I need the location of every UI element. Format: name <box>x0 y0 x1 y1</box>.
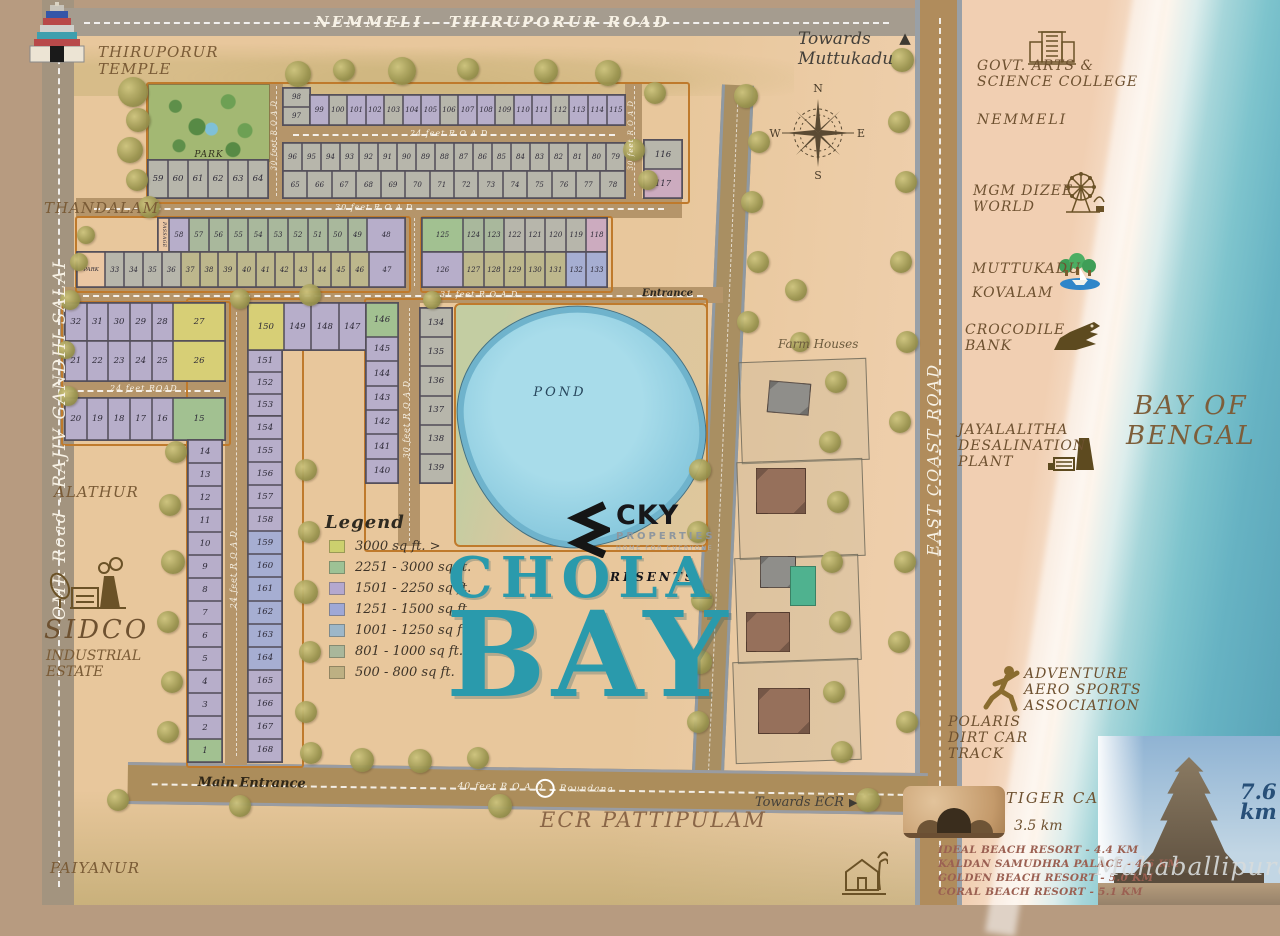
plot-136: 136 <box>420 366 452 395</box>
plot-103: 103 <box>384 95 403 125</box>
tree-icon <box>467 747 489 769</box>
muttukadu-kovalam-label: MUTTUKADU KOVALAM <box>972 258 1081 306</box>
compass-rose-icon: N S W E <box>768 80 868 180</box>
plot-82: 82 <box>549 143 568 171</box>
tree-icon <box>737 311 759 333</box>
plot-76: 76 <box>552 171 576 198</box>
plot-38: 38 <box>200 252 219 287</box>
plot-93: 93 <box>340 143 359 171</box>
farm-pool <box>790 566 816 606</box>
plot-69: 69 <box>381 171 405 198</box>
tree-icon <box>70 253 88 271</box>
plot-154: 154 <box>248 416 282 439</box>
plot-59: 59 <box>148 160 168 198</box>
plot-57: 57 <box>189 218 209 252</box>
plot-53: 53 <box>268 218 288 252</box>
tree-icon <box>77 226 95 244</box>
tree-icon <box>408 749 432 773</box>
plot-43: 43 <box>294 252 313 287</box>
tree-icon <box>350 748 374 772</box>
row-65-78: 6566676869707172737475767778 <box>283 171 625 198</box>
plot-160: 160 <box>248 554 282 577</box>
plot-73: 73 <box>478 171 502 198</box>
plot-99: 99 <box>310 95 329 125</box>
plot-46: 46 <box>350 252 369 287</box>
plot-127: 127 <box>463 252 484 287</box>
plot-95: 95 <box>302 143 321 171</box>
plot-4: 4 <box>188 670 222 693</box>
tree-icon <box>896 331 918 353</box>
plot-74: 74 <box>503 171 527 198</box>
roundana-label: Roundana <box>560 784 614 795</box>
plot-13: 13 <box>188 463 222 486</box>
plot-56: 56 <box>209 218 229 252</box>
plot-29: 29 <box>130 303 152 341</box>
plot-142: 142 <box>366 410 398 434</box>
plot-107: 107 <box>458 95 477 125</box>
plot-86: 86 <box>473 143 492 171</box>
plot-35: 35 <box>143 252 162 287</box>
tree-icon <box>285 61 311 87</box>
plot-121: 121 <box>525 218 546 252</box>
plot-109: 109 <box>495 95 514 125</box>
tree-icon <box>856 788 880 812</box>
plot-135: 135 <box>420 337 452 366</box>
tree-icon <box>333 59 355 81</box>
tree-icon <box>488 794 512 818</box>
nemmeli-road-label: NEMMELI - THIRUPORUR ROAD <box>315 13 615 31</box>
plot-6: 6 <box>188 624 222 647</box>
farm-houses-label: Farm Houses <box>778 338 858 352</box>
col-146-140: 146145144143142141140 <box>366 303 398 483</box>
tree-icon <box>734 84 758 108</box>
tree-icon <box>888 111 910 133</box>
plot-47: 47 <box>369 252 405 287</box>
tree-icon <box>300 742 322 764</box>
plot-3: 3 <box>188 693 222 716</box>
plot-42: 42 <box>275 252 294 287</box>
plot-157: 157 <box>248 485 282 508</box>
plot-96: 96 <box>283 143 302 171</box>
plot-139: 139 <box>420 454 452 483</box>
plot-88: 88 <box>435 143 454 171</box>
row-99-115: 9910010110210310410510610710810911011111… <box>310 95 625 125</box>
tree-icon <box>748 131 770 153</box>
plot-115: 115 <box>607 95 626 125</box>
plot-22: 22 <box>87 341 109 381</box>
compass-w: W <box>769 127 781 140</box>
plot-165: 165 <box>248 670 282 693</box>
road-31-label: 31 feet R O A D <box>440 290 518 299</box>
plot-17: 17 <box>130 398 152 440</box>
row-21-26: 212223242526 <box>65 341 225 381</box>
plot-63: 63 <box>228 160 248 198</box>
plot-31: 31 <box>87 303 109 341</box>
tree-icon <box>890 251 912 273</box>
cave-arch <box>937 808 971 834</box>
plot-64: 64 <box>248 160 268 198</box>
plot-137: 137 <box>420 396 452 425</box>
plot-158: 158 <box>248 508 282 531</box>
row-126-133: 126127128129130131132133 <box>422 252 607 287</box>
govt-college-label: GOVT. ARTS & SCIENCE COLLEGE <box>977 58 1138 90</box>
plot-15: 15 <box>173 398 225 440</box>
plot-54: 54 <box>248 218 268 252</box>
towards-ecr: Towards ECR ▶ <box>755 796 857 811</box>
tree-icon <box>895 171 917 193</box>
tree-icon <box>829 611 851 633</box>
col-14-1: 1413121110987654321 <box>188 440 222 762</box>
tree-icon <box>299 284 321 306</box>
plot-126: 126 <box>422 252 463 287</box>
plot-161: 161 <box>248 577 282 600</box>
legend-swatch <box>329 540 345 553</box>
desalination-plant-label: JAYALALITHA DESALINATION PLANT <box>958 422 1086 470</box>
tree-icon <box>299 641 321 663</box>
park-area: PARK <box>148 84 270 162</box>
plot-166: 166 <box>248 693 282 716</box>
plot-81: 81 <box>568 143 587 171</box>
towards-muttukadu: Towards Muttukadu ▲ <box>798 30 911 69</box>
plot-168: 168 <box>248 739 282 762</box>
plot-129: 129 <box>504 252 525 287</box>
cave-base <box>903 833 1005 838</box>
tree-icon <box>457 58 479 80</box>
plot-133: 133 <box>586 252 607 287</box>
tree-icon <box>823 681 845 703</box>
plot-24: 24 <box>130 341 152 381</box>
plot-80: 80 <box>587 143 606 171</box>
runner-icon <box>982 664 1022 712</box>
plot-128: 128 <box>484 252 505 287</box>
tree-icon <box>165 441 187 463</box>
plot-141: 141 <box>366 434 398 458</box>
plot-156: 156 <box>248 462 282 485</box>
tiger-caves-distance: 3.5 km <box>1014 818 1062 834</box>
tree-icon <box>831 741 853 763</box>
row-96-79: 969594939291908988878685848382818079 <box>283 143 625 171</box>
tree-icon <box>295 701 317 723</box>
entrance-label: Entrance <box>642 288 693 300</box>
tree-icon <box>107 789 129 811</box>
plot-49: 49 <box>348 218 368 252</box>
plot-143: 143 <box>366 386 398 410</box>
farm-house <box>756 468 806 514</box>
plot-26: 26 <box>173 341 225 381</box>
row-98-97: 9897 <box>283 88 310 125</box>
plot-89: 89 <box>416 143 435 171</box>
tree-icon <box>747 251 769 273</box>
legend-swatch <box>329 603 345 616</box>
row-58-48: PASSAGE5857565554535251504948 <box>158 218 405 252</box>
plot-119: 119 <box>566 218 587 252</box>
road-30a-label: 30 feet R O A D <box>335 203 413 212</box>
bay-of-bengal-label: BAY OF BENGAL <box>1126 392 1256 452</box>
tree-icon <box>821 551 843 573</box>
tree-icon <box>534 59 558 83</box>
plot-14: 14 <box>188 440 222 463</box>
plot-67: 67 <box>332 171 356 198</box>
plot-77: 77 <box>576 171 600 198</box>
plot-125: 125 <box>422 218 463 252</box>
plot-100: 100 <box>329 95 348 125</box>
plot-8: 8 <box>188 578 222 601</box>
tree-icon <box>117 137 143 163</box>
plot-48: 48 <box>367 218 405 252</box>
plot-102: 102 <box>366 95 385 125</box>
plot-163: 163 <box>248 624 282 647</box>
resort-item: CORAL BEACH RESORT - 5.1 KM <box>938 885 1180 899</box>
tree-icon <box>118 77 148 107</box>
plot-114: 114 <box>588 95 607 125</box>
compass-e: E <box>857 127 865 140</box>
farm-house <box>746 612 790 652</box>
tree-icon <box>126 108 150 132</box>
plot-101: 101 <box>347 95 366 125</box>
row-20-15: 201918171615 <box>65 398 225 440</box>
plot-60: 60 <box>168 160 188 198</box>
plot-87: 87 <box>454 143 473 171</box>
plot-155: 155 <box>248 439 282 462</box>
plot-150: 150 <box>248 303 284 350</box>
plot-146: 146 <box>366 303 398 337</box>
plot-25: 25 <box>152 341 174 381</box>
crocodile-bank-label: CROCODILE BANK <box>965 322 1065 354</box>
tree-icon <box>819 431 841 453</box>
plot-92: 92 <box>359 143 378 171</box>
plot-44: 44 <box>313 252 332 287</box>
plot-51: 51 <box>308 218 328 252</box>
plot-132: 132 <box>566 252 587 287</box>
plot-104: 104 <box>403 95 422 125</box>
plot-111: 111 <box>532 95 551 125</box>
plot-138: 138 <box>420 425 452 454</box>
plot-40: 40 <box>237 252 256 287</box>
plot-68: 68 <box>356 171 380 198</box>
compass-s: S <box>814 169 822 180</box>
tree-icon <box>644 82 666 104</box>
forty-feet-road-label: 40 feet R O A D <box>458 782 544 793</box>
legend-swatch <box>329 561 345 574</box>
cky-sub: PROPERTIES <box>616 531 716 542</box>
tree-icon <box>157 721 179 743</box>
plot-134: 134 <box>420 308 452 337</box>
plot-50: 50 <box>328 218 348 252</box>
plot-18: 18 <box>108 398 130 440</box>
plot-70: 70 <box>405 171 429 198</box>
plot-151: 151 <box>248 350 282 372</box>
towards-muttukadu-label: Towards Muttukadu <box>798 30 893 69</box>
plot-159: 159 <box>248 531 282 554</box>
tree-icon <box>689 459 711 481</box>
plot-45: 45 <box>331 252 350 287</box>
plot-140: 140 <box>366 459 398 483</box>
tree-icon <box>161 671 183 693</box>
row-125-118: 125124123122121120119118 <box>422 218 607 252</box>
legend-label: 500 - 800 sq ft. <box>355 665 455 680</box>
up-triangle-icon: ▲ <box>899 30 911 69</box>
plot-58: 58 <box>169 218 189 252</box>
tree-icon <box>388 57 416 85</box>
plot-16: 16 <box>152 398 174 440</box>
compass-n: N <box>813 82 823 95</box>
plot-148: 148 <box>311 303 338 350</box>
road-v1-label: 30 feet R O A D <box>270 100 278 170</box>
plot-84: 84 <box>511 143 530 171</box>
tree-icon <box>827 491 849 513</box>
plot-147: 147 <box>339 303 366 350</box>
road-24a-label: 24 feet R O A D <box>410 129 488 138</box>
tree-icon <box>888 631 910 653</box>
plot-83: 83 <box>530 143 549 171</box>
tree-icon <box>825 371 847 393</box>
ecr-pattipulam-label: ECR PATTIPULAM <box>540 808 767 832</box>
plot-33: 33 <box>105 252 124 287</box>
row-32-27: 323130292827 <box>65 303 225 341</box>
plot-2: 2 <box>188 716 222 739</box>
plot-39: 39 <box>218 252 237 287</box>
plot-145: 145 <box>366 337 398 361</box>
plot-34: 34 <box>124 252 143 287</box>
plot-112: 112 <box>551 95 570 125</box>
tree-icon <box>298 521 320 543</box>
tree-icon <box>294 580 318 604</box>
mahabalipuram-distance: 7.6 km <box>1240 782 1277 822</box>
tree-icon <box>230 289 250 309</box>
plot-123: 123 <box>484 218 505 252</box>
legend-label: 3000 sq ft. > <box>355 539 441 554</box>
road-24b-label: 24 feet ROAD <box>110 384 178 393</box>
tree-icon <box>889 411 911 433</box>
farm-house <box>767 380 812 416</box>
col-154-168: 1541551561571581591601611621631641651661… <box>248 416 282 762</box>
nemmeli-label: NEMMELI <box>977 112 1067 128</box>
tree-icon <box>785 279 807 301</box>
plot-162: 162 <box>248 601 282 624</box>
plot-66: 66 <box>307 171 331 198</box>
right-triangle-icon: ▶ <box>849 797 857 810</box>
plot-27: 27 <box>173 303 225 341</box>
plot-108: 108 <box>477 95 496 125</box>
tree-icon <box>741 191 763 213</box>
plot-97: 97 <box>283 107 310 126</box>
plot-78: 78 <box>600 171 624 198</box>
legend-title: Legend <box>325 512 471 533</box>
plot-153: 153 <box>248 394 282 416</box>
legend-swatch <box>329 645 345 658</box>
sidco-factory-icon <box>46 556 130 614</box>
tiger-caves-photo <box>903 786 1005 838</box>
road-v2-label: 30 feet R O A D <box>627 100 635 170</box>
plot-10: 10 <box>188 532 222 555</box>
plot-152: 152 <box>248 372 282 394</box>
plot-79: 79 <box>606 143 625 171</box>
thiruporur-temple-label: THIRUPORUR TEMPLE <box>98 44 219 79</box>
plot-1: 1 <box>188 739 222 762</box>
mahabalipuram-label: Mahaballipuram <box>1095 852 1280 881</box>
plot-52: 52 <box>288 218 308 252</box>
row-150-147: 150149148147 <box>248 303 366 350</box>
plot-110: 110 <box>514 95 533 125</box>
plot-36: 36 <box>162 252 181 287</box>
farm-house <box>758 688 810 734</box>
row-33-47: PARK333435363738394041424344454647 <box>77 252 405 287</box>
pond-label: POND <box>505 386 615 401</box>
tree-icon <box>159 494 181 516</box>
plot-130: 130 <box>525 252 546 287</box>
plot-75: 75 <box>527 171 551 198</box>
mgm-dizee-world-label: MGM DIZEE WORLD <box>973 183 1073 215</box>
industrial-estate-label: INDUSTRIAL ESTATE <box>46 648 141 680</box>
plot-9: 9 <box>188 555 222 578</box>
alathur-label: ALATHUR <box>54 484 139 501</box>
plot-144: 144 <box>366 361 398 385</box>
plot-55: 55 <box>228 218 248 252</box>
col-134-139: 134135136137138139 <box>420 308 452 483</box>
plot-7: 7 <box>188 601 222 624</box>
plot-37: 37 <box>181 252 200 287</box>
plot-72: 72 <box>454 171 478 198</box>
plot-122: 122 <box>504 218 525 252</box>
plot-149: 149 <box>284 303 311 350</box>
plot-19: 19 <box>87 398 109 440</box>
legend-swatch <box>329 582 345 595</box>
plot-167: 167 <box>248 716 282 739</box>
tree-icon <box>161 550 185 574</box>
towards-ecr-label: Towards ECR <box>755 796 844 811</box>
passage-cell: PASSAGE <box>158 218 169 252</box>
thiruporur-temple-icon <box>24 2 90 64</box>
tree-icon <box>229 795 251 817</box>
thandalam-label: THANDALAM <box>44 200 159 217</box>
sidco-label: SIDCO <box>44 616 149 646</box>
plot-106: 106 <box>440 95 459 125</box>
plot-85: 85 <box>492 143 511 171</box>
plot-116: 116 <box>644 140 682 169</box>
plot-105: 105 <box>421 95 440 125</box>
internal-road-31 <box>63 287 723 303</box>
tree-icon <box>638 170 658 190</box>
tree-icon <box>423 291 441 309</box>
plot-30: 30 <box>108 303 130 341</box>
tree-icon <box>126 169 148 191</box>
cky-name: CKY <box>616 500 716 531</box>
park-label: PARK <box>149 150 269 160</box>
tree-icon <box>896 711 918 733</box>
plot-118: 118 <box>586 218 607 252</box>
chola-bay-layout-map: { "colors":{"gray":"#b7b6ab","lav":"#b7a… <box>0 0 1280 905</box>
tree-icon <box>295 459 317 481</box>
plot-120: 120 <box>545 218 566 252</box>
plot-71: 71 <box>430 171 454 198</box>
plot-131: 131 <box>545 252 566 287</box>
plot-90: 90 <box>397 143 416 171</box>
plot-164: 164 <box>248 647 282 670</box>
tree-icon <box>157 611 179 633</box>
aero-sports-label: ADVENTURE AERO SPORTS ASSOCIATION <box>1024 666 1142 714</box>
col-151-153: 151152153 <box>248 350 282 416</box>
plot-65: 65 <box>283 171 307 198</box>
plot-94: 94 <box>321 143 340 171</box>
row-59-64: 596061626364 <box>148 160 268 198</box>
polaris-label: POLARIS DIRT CAR TRACK <box>948 714 1028 762</box>
road-v5-label: 30 feet R O A D <box>402 380 411 458</box>
plot-12: 12 <box>188 486 222 509</box>
beach-house-icon <box>840 842 888 896</box>
main-entrance-label: Main Entrance <box>198 776 306 792</box>
plot-11: 11 <box>188 509 222 532</box>
plot-5: 5 <box>188 647 222 670</box>
